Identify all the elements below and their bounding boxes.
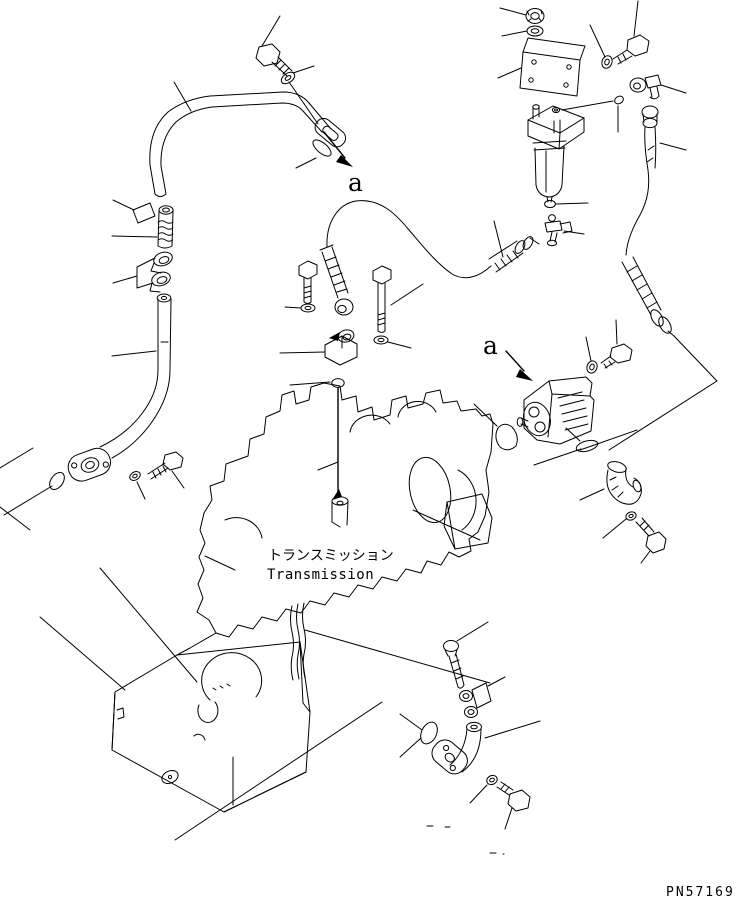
washer [527, 26, 543, 36]
nipple-fitting [158, 206, 173, 248]
leader-line [488, 677, 505, 686]
elbow-tube [607, 460, 643, 505]
washer [301, 304, 315, 312]
leader-line [470, 785, 487, 803]
leader-line [661, 85, 686, 93]
washer [374, 336, 388, 344]
clamp-plate [133, 203, 155, 223]
tube-flange [312, 115, 349, 150]
return-elbow-assembly [580, 430, 666, 563]
oil-tube-assembly [150, 16, 349, 197]
leader-line [502, 31, 527, 36]
center-mount-group [280, 261, 423, 365]
drain-elbow-fitting [545, 215, 572, 246]
suction-pipe-assembly [0, 294, 184, 530]
clamp-bracket [325, 328, 357, 365]
leader-line [0, 507, 30, 530]
hex-bolt [256, 44, 292, 76]
pipe-top-opening [157, 294, 171, 302]
leader-line [280, 352, 325, 353]
retainer-plate [472, 683, 491, 708]
leader-line [580, 489, 604, 500]
pump-assembly: a [474, 320, 632, 465]
leader-line [400, 738, 421, 757]
elbow-flange [65, 445, 115, 485]
mounting-bracket [520, 38, 585, 96]
elbow-pipe [427, 722, 481, 778]
hex-bolt [148, 452, 183, 479]
leader-line [100, 568, 197, 682]
stud-bolt [444, 641, 465, 689]
leader-line [112, 236, 157, 237]
assembly-axis-line [289, 82, 318, 124]
o-ring [47, 470, 68, 492]
leader-line [293, 66, 314, 73]
leader-line [137, 482, 145, 499]
leader-line [112, 351, 156, 356]
leader-line [400, 714, 422, 730]
component-label-en: Transmission [267, 567, 374, 583]
tube-end-cap [155, 194, 166, 197]
o-ring [613, 95, 625, 106]
case-right-outline [469, 424, 493, 539]
leader-line [113, 276, 137, 283]
hex-bolt [373, 266, 391, 333]
leader-line [485, 721, 540, 738]
bell-housing-bore [404, 454, 457, 527]
hose-end-fitting [320, 245, 353, 315]
output-flange-box [444, 494, 492, 549]
hose-clamp [151, 250, 174, 273]
o-ring [465, 707, 478, 718]
fitting-clamp-group [112, 200, 174, 292]
suction-pipe [100, 299, 171, 458]
view-label-a-top: a [348, 168, 363, 197]
leader-line [660, 143, 686, 150]
parts-diagram-page: a [0, 0, 736, 901]
case-top-outline [204, 383, 493, 513]
leader-line [634, 1, 638, 36]
o-ring [460, 691, 473, 702]
leader-line [580, 430, 637, 450]
leader-line [505, 808, 512, 829]
pump-oval-gasket [575, 438, 599, 453]
hose-threaded-fitting [489, 235, 539, 272]
filter-assembly-group [498, 1, 717, 450]
view-arrow-a-top: a [324, 132, 363, 197]
view-label-a-side: a [483, 331, 498, 360]
gear-pump [517, 377, 594, 444]
leader-line [4, 486, 52, 515]
part-number: PN57169 [666, 885, 735, 900]
oil-hose [327, 201, 491, 278]
leader-line [262, 16, 280, 46]
leader-line [113, 200, 134, 210]
shift-ribs [291, 603, 306, 680]
arrow-shaft [506, 351, 524, 371]
leader-line [586, 337, 591, 361]
leader-line [498, 68, 521, 78]
clamp-bracket [137, 258, 155, 288]
dash-marks [427, 826, 504, 854]
washer [128, 470, 142, 483]
leader-line [500, 8, 526, 15]
hex-bolt [636, 518, 666, 553]
leader-line [296, 158, 316, 168]
component-label-jp: トランスミッション [268, 548, 394, 564]
hex-bolt [299, 261, 317, 304]
leader-line [285, 307, 301, 308]
leader-line [562, 101, 613, 110]
oil-pan [112, 642, 310, 812]
leader-line [388, 342, 411, 348]
drain-pipe-assembly [400, 622, 540, 854]
washer [585, 359, 599, 374]
pump-gasket [496, 424, 517, 450]
elbow-fitting [630, 75, 661, 99]
leader-line [641, 551, 650, 563]
oil-tube-inner [161, 103, 322, 194]
oil-filter [528, 105, 584, 202]
return-hose [622, 106, 674, 336]
leader-line [494, 221, 503, 257]
hex-nut [526, 9, 544, 24]
hex-bolt [613, 35, 649, 64]
leader-line [172, 471, 184, 488]
leader-line [0, 448, 33, 468]
hex-bolt [601, 344, 632, 368]
washer [625, 510, 638, 521]
leader-line [603, 519, 626, 538]
leader-line [40, 617, 125, 690]
o-ring [545, 200, 556, 207]
diagram-canvas: a [0, 0, 736, 901]
washer [600, 54, 614, 69]
leader-line [616, 320, 617, 344]
leader-line [391, 284, 423, 305]
view-arrow-a-side: a [483, 331, 533, 381]
oil-tube [150, 92, 331, 194]
washer [485, 774, 499, 787]
dipstick [332, 379, 348, 527]
case-left-outline [177, 513, 216, 655]
leader-line [609, 336, 717, 450]
leader-line [457, 622, 488, 641]
oil-hose-assembly [320, 201, 539, 315]
transmission-case: トランスミッション Transmission [40, 379, 493, 840]
leader-line [556, 203, 588, 204]
leader-line [534, 449, 581, 465]
hex-bolt [497, 782, 530, 811]
leader-line [590, 25, 605, 57]
